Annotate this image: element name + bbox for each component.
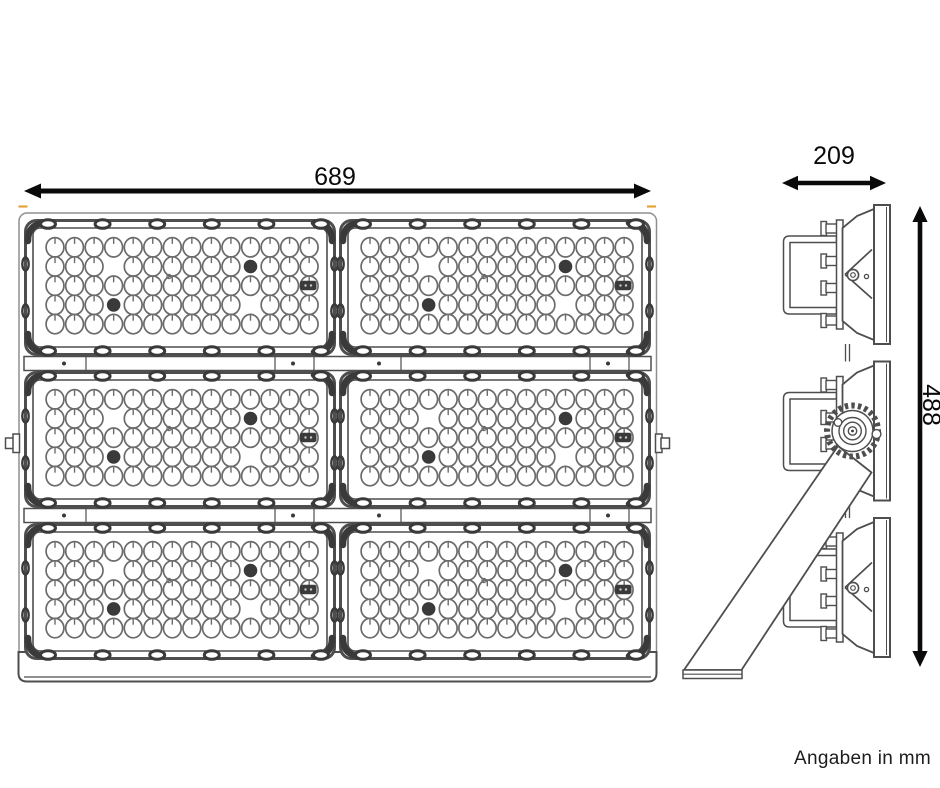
sensor-led-dark <box>107 298 121 312</box>
side-height-label: 488 <box>917 384 940 426</box>
sensor-led-dark <box>107 450 121 464</box>
technical-drawing-page: 689 209 488 Angaben in mm <box>0 0 940 788</box>
dimension-front-width: 689 <box>19 163 657 207</box>
screw-tab-icon <box>314 220 329 229</box>
side-depth-label: 209 <box>813 142 855 170</box>
screw-tab-icon <box>465 524 480 533</box>
screw-tab-icon <box>519 499 534 508</box>
screw-tab-icon <box>356 220 371 229</box>
screw-tab-icon <box>574 524 589 533</box>
screw-tab-icon <box>519 220 534 229</box>
screw-tab-icon <box>519 372 534 381</box>
screw-tab-icon <box>204 372 219 381</box>
screw-tab-icon <box>259 499 274 508</box>
arrowhead-right-icon <box>870 176 886 190</box>
screw-dot-icon <box>606 362 610 366</box>
id-plate-icon <box>615 281 632 291</box>
screw-tab-icon <box>95 372 110 381</box>
screw-tab-icon <box>519 347 534 356</box>
dimension-side-height: 488 <box>912 206 940 667</box>
id-plate-icon <box>300 281 317 291</box>
screw-tab-icon <box>259 347 274 356</box>
screw-tab-icon <box>314 499 329 508</box>
screw-tab-icon <box>204 220 219 229</box>
sensor-led-dark <box>422 298 436 312</box>
screw-tab-icon <box>41 499 56 508</box>
side-hinge-bolt <box>661 438 670 449</box>
fin-loop <box>784 236 837 314</box>
screw-tab-icon <box>314 372 329 381</box>
screw-tab-icon <box>41 372 56 381</box>
screw-tab-icon <box>150 651 165 660</box>
id-plate-icon <box>300 585 317 595</box>
id-plate-icon <box>615 433 632 443</box>
screw-tab-icon <box>95 499 110 508</box>
screw-tab-icon <box>95 651 110 660</box>
screw-tab-icon <box>410 347 425 356</box>
arrowhead-left-icon <box>24 184 41 199</box>
floodlight-dimension-drawing: 689 209 488 Angaben in mm <box>0 0 940 788</box>
screw-tab-icon <box>204 651 219 660</box>
screw-tab-icon <box>150 220 165 229</box>
screw-tab-icon <box>95 524 110 533</box>
arrowhead-down-icon <box>912 651 927 667</box>
led-module <box>337 524 652 660</box>
side-hinge-bolt <box>13 434 20 453</box>
screw-dot-icon <box>62 362 66 366</box>
screw-tab-icon <box>41 220 56 229</box>
screw-dot-icon <box>377 514 381 518</box>
sensor-led-dark <box>107 602 121 616</box>
screw-head-icon <box>847 269 858 280</box>
screw-tab-icon <box>204 347 219 356</box>
screw-dot-icon <box>291 362 295 366</box>
screw-tab-icon <box>356 499 371 508</box>
screw-tab-icon <box>95 220 110 229</box>
id-plate-icon <box>615 585 632 595</box>
screw-tab-icon <box>314 524 329 533</box>
screw-tab-icon <box>150 372 165 381</box>
screw-tab-icon <box>410 651 425 660</box>
screw-dot-icon <box>377 362 381 366</box>
screw-tab-icon <box>465 372 480 381</box>
screw-tab-icon <box>629 524 644 533</box>
screw-tab-icon <box>574 499 589 508</box>
screw-tab-icon <box>150 499 165 508</box>
screw-tab-icon <box>629 347 644 356</box>
led-module <box>22 372 337 508</box>
screw-tab-icon <box>629 220 644 229</box>
screw-tab-icon <box>410 372 425 381</box>
screw-tab-icon <box>574 651 589 660</box>
screw-tab-icon <box>574 220 589 229</box>
screw-tab-icon <box>629 372 644 381</box>
screw-tab-icon <box>465 220 480 229</box>
screw-tab-icon <box>356 372 371 381</box>
screw-tab-icon <box>150 524 165 533</box>
screw-tab-icon <box>41 347 56 356</box>
screw-dot-icon <box>606 514 610 518</box>
screw-tab-icon <box>574 372 589 381</box>
side-module-profile <box>784 205 891 344</box>
id-plate-icon <box>300 433 317 443</box>
sensor-led-dark <box>244 412 258 426</box>
front-view-floodlight <box>6 213 670 682</box>
screw-tab-icon <box>410 220 425 229</box>
screw-tab-icon <box>204 524 219 533</box>
led-module <box>22 524 337 660</box>
sensor-led-dark <box>559 564 573 578</box>
row-connector-strip <box>24 357 651 371</box>
sensor-led-dark <box>559 260 573 274</box>
screw-tab-icon <box>410 499 425 508</box>
screw-tab-icon <box>314 651 329 660</box>
front-width-label: 689 <box>314 163 356 191</box>
sensor-led-dark <box>244 260 258 274</box>
units-note: Angaben in mm <box>794 748 931 769</box>
screw-tab-icon <box>574 347 589 356</box>
screw-tab-icon <box>41 524 56 533</box>
screw-tab-icon <box>95 347 110 356</box>
screw-tab-icon <box>519 651 534 660</box>
side-view-floodlight <box>683 205 890 679</box>
screw-tab-icon <box>356 651 371 660</box>
screw-tab-icon <box>465 499 480 508</box>
screw-tab-icon <box>465 651 480 660</box>
sensor-led-dark <box>422 602 436 616</box>
screw-tab-icon <box>259 524 274 533</box>
screw-tab-icon <box>259 220 274 229</box>
arrowhead-right-icon <box>634 184 651 199</box>
screw-tab-icon <box>259 372 274 381</box>
screw-tab-icon <box>465 347 480 356</box>
screw-tab-icon <box>150 347 165 356</box>
row-connector-strip <box>24 509 651 523</box>
screw-head-icon <box>847 582 858 593</box>
screw-tab-icon <box>519 524 534 533</box>
screw-tab-icon <box>629 651 644 660</box>
screw-tab-icon <box>204 499 219 508</box>
front-plate <box>874 518 890 657</box>
screw-tab-icon <box>356 347 371 356</box>
led-module <box>337 220 652 356</box>
led-module <box>22 220 337 356</box>
screw-tab-icon <box>410 524 425 533</box>
screw-dot-icon <box>62 514 66 518</box>
screw-tab-icon <box>356 524 371 533</box>
screw-tab-icon <box>629 499 644 508</box>
screw-tab-icon <box>259 651 274 660</box>
sensor-led-dark <box>244 564 258 578</box>
arrowhead-up-icon <box>912 206 927 222</box>
screw-tab-icon <box>314 347 329 356</box>
sensor-led-dark <box>422 450 436 464</box>
arrowhead-left-icon <box>782 176 798 190</box>
front-plate <box>874 205 890 344</box>
screw-tab-icon <box>41 651 56 660</box>
led-module <box>337 372 652 508</box>
dimension-side-depth: 209 <box>782 142 886 190</box>
screw-dot-icon <box>291 514 295 518</box>
sensor-led-dark <box>559 412 573 426</box>
